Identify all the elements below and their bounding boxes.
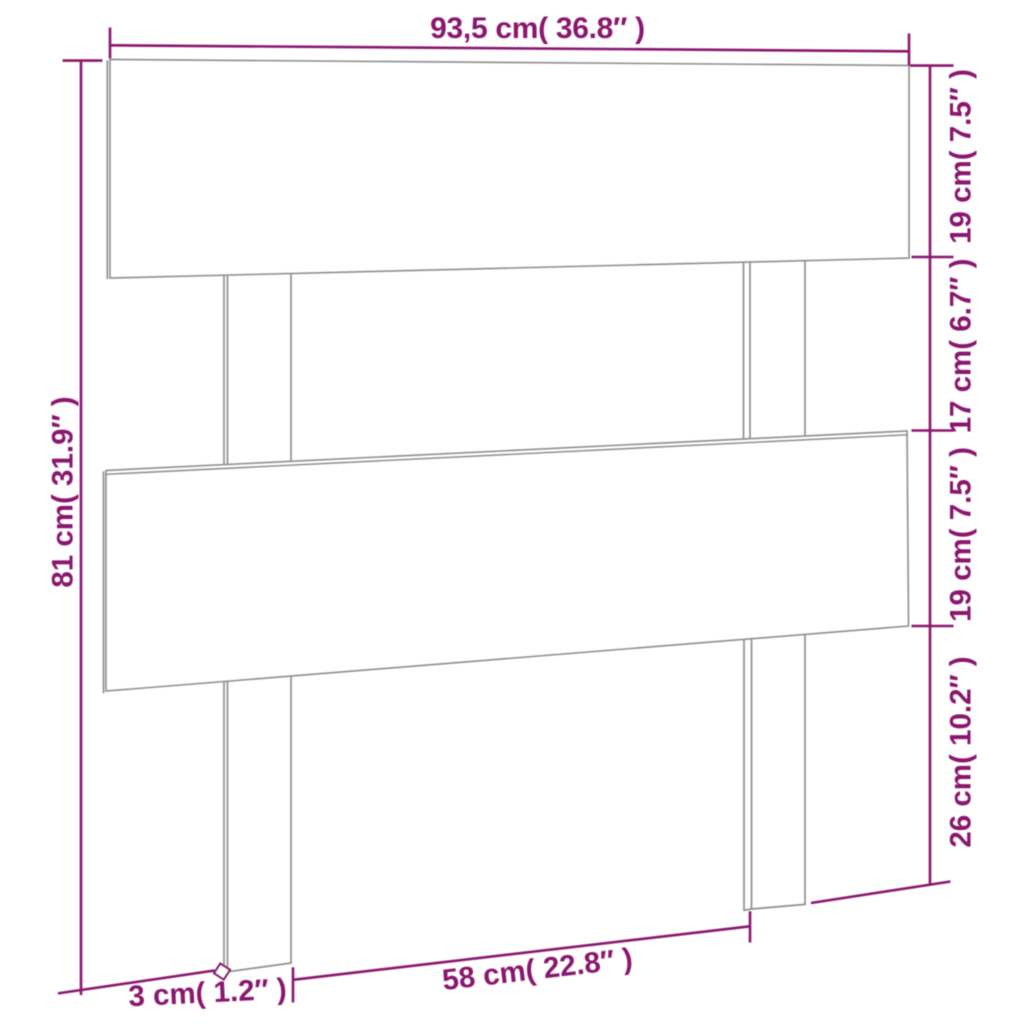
svg-text:19 cm( 7.5″ ): 19 cm( 7.5″ ): [945, 447, 978, 622]
svg-text:93,5 cm( 36.8″ ): 93,5 cm( 36.8″ ): [430, 12, 645, 45]
svg-text:26 cm( 10.2″ ): 26 cm( 10.2″ ): [945, 656, 978, 847]
svg-text:81 cm( 31.9″ ): 81 cm( 31.9″ ): [47, 396, 80, 587]
svg-text:19 cm( 7.5″ ): 19 cm( 7.5″ ): [945, 69, 978, 244]
svg-text:17 cm( 6.7″ ): 17 cm( 6.7″ ): [945, 259, 978, 434]
